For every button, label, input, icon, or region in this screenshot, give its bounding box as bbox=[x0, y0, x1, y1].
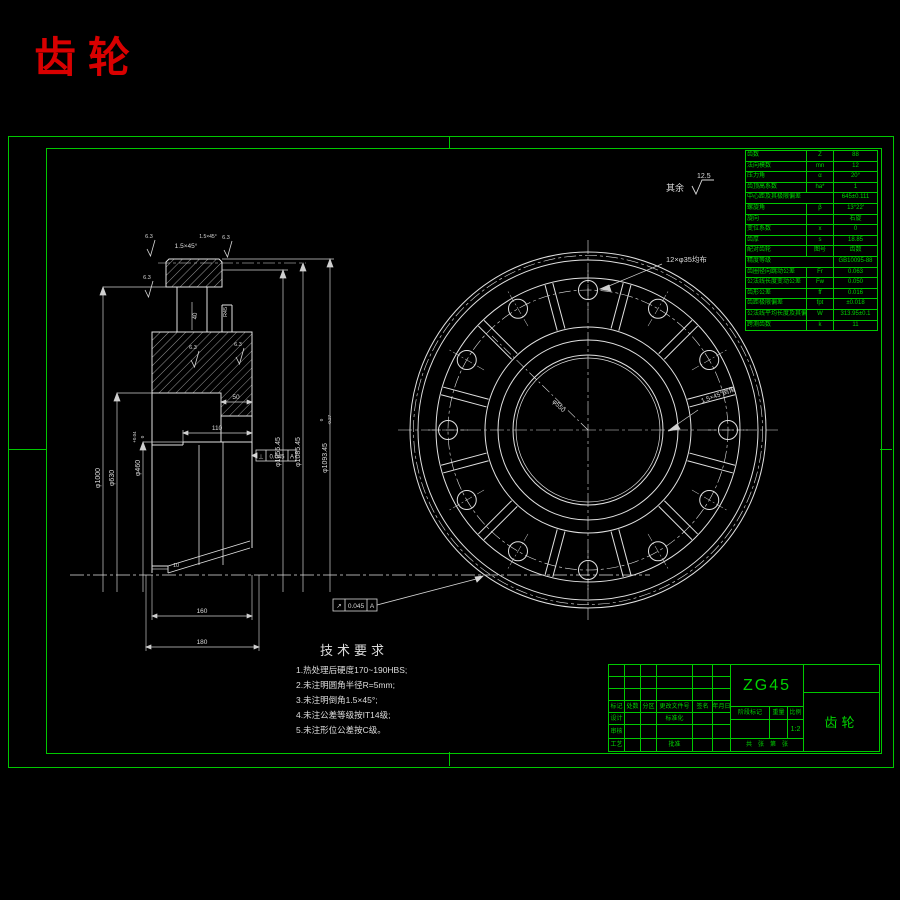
svg-text:6.3: 6.3 bbox=[145, 234, 153, 240]
svg-text:+0.04: +0.04 bbox=[132, 431, 137, 443]
part-name-cell: 齿轮 bbox=[803, 692, 880, 752]
dim-10: 10 bbox=[173, 563, 179, 569]
chamfer-note-1: 1.5×45° bbox=[175, 242, 198, 250]
bore-lines bbox=[152, 393, 252, 573]
dim-dia1000: φ1000 bbox=[95, 468, 102, 488]
svg-text:↗: ↗ bbox=[336, 603, 341, 610]
dim-r45: R45 bbox=[223, 307, 229, 317]
tolerance-frame-runout: ↗ 0.045 A bbox=[333, 576, 483, 611]
title-block: 标记 处数 分区 更改文件号 签名 年月日 设计 标准化 审核 工艺 批准 ZG… bbox=[608, 664, 880, 752]
label-audit: 审核 bbox=[608, 724, 625, 739]
svg-text:6.3: 6.3 bbox=[222, 235, 230, 241]
label-approve: 批准 bbox=[656, 738, 693, 752]
dim-50: 50 bbox=[232, 394, 240, 401]
dim-dia460: φ460 bbox=[135, 460, 142, 476]
tech-req-line: 3.未注明倒角1.5×45°; bbox=[296, 693, 407, 708]
scale-header: 比例 bbox=[787, 706, 804, 720]
roughness-icon bbox=[692, 180, 714, 194]
label-process: 工艺 bbox=[608, 738, 625, 752]
surface-note-prefix: 其余 bbox=[666, 182, 684, 193]
technical-requirements: 技术要求 1.热处理后硬度170~190HBS; 2.未注明圆角半径R=5mm;… bbox=[296, 640, 407, 738]
dim-40: 40 bbox=[193, 312, 199, 319]
dim-dia630: φ630 bbox=[109, 470, 116, 486]
tech-req-line: 4.未注公差等级按IT14级; bbox=[296, 708, 407, 723]
tolerance-frame-vertical-wall: ⊥ 0.045 A bbox=[252, 450, 296, 461]
tech-req-title: 技术要求 bbox=[320, 640, 407, 659]
svg-text:A: A bbox=[370, 603, 375, 610]
section-view bbox=[70, 259, 650, 651]
dim-dia1093: φ1093.45 bbox=[322, 443, 329, 473]
dim-110: 110 bbox=[212, 425, 223, 432]
web-section bbox=[166, 287, 222, 332]
svg-text:0: 0 bbox=[140, 435, 145, 438]
dim-180: 180 bbox=[197, 639, 208, 646]
dim-dia1055: φ1055.45 bbox=[275, 437, 282, 467]
drawing-views: φ1000 φ630 φ460 +0.04 0 φ1055.45 φ1085.4… bbox=[0, 0, 900, 900]
weight-header: 重量 bbox=[769, 706, 788, 720]
svg-text:-0.27: -0.27 bbox=[327, 414, 332, 425]
scale-value: 1:2 bbox=[787, 719, 804, 739]
geometric-tolerance-frames: ⊥ 0.045 A ↗ 0.045 A bbox=[252, 450, 483, 611]
sheet-note: 共 张 第 张 bbox=[730, 738, 804, 752]
stage-header: 阶段标记 bbox=[730, 706, 770, 720]
svg-text:⊥: ⊥ bbox=[258, 454, 263, 461]
svg-text:6.3: 6.3 bbox=[143, 275, 151, 281]
material-cell: ZG45 bbox=[730, 664, 804, 707]
rib-edge bbox=[152, 541, 250, 573]
bore-dia-label: φ550 bbox=[551, 398, 567, 414]
svg-text:A: A bbox=[290, 455, 294, 461]
dim-160: 160 bbox=[197, 608, 208, 615]
section-dim-texts: φ1000 φ630 φ460 +0.04 0 φ1055.45 φ1085.4… bbox=[95, 234, 332, 646]
roughness-icon: 6.3 bbox=[222, 235, 232, 257]
roughness-icon: 6.3 bbox=[145, 234, 155, 256]
svg-text:6.3: 6.3 bbox=[234, 342, 242, 348]
tech-req-line: 2.未注明圆角半径R=5mm; bbox=[296, 678, 407, 693]
roughness-icon: 6.3 bbox=[143, 275, 153, 297]
tech-req-line: 5.未注形位公差按C级。 bbox=[296, 723, 407, 738]
holes-callout: 12×φ35均布 bbox=[666, 254, 707, 264]
chamfer-note-2: 1.5×45° bbox=[199, 234, 216, 240]
svg-text:6.3: 6.3 bbox=[189, 345, 197, 351]
front-view bbox=[398, 240, 778, 620]
svg-text:0.045: 0.045 bbox=[348, 603, 365, 610]
cad-drawing-canvas: 齿轮 齿数Z88 法向模数mn12 压力角α20° 齿顶高系数ha*1 中心距及… bbox=[0, 0, 900, 900]
tech-req-line: 1.热处理后硬度170~190HBS; bbox=[296, 663, 407, 678]
svg-text:0.045: 0.045 bbox=[269, 455, 285, 461]
surface-note-value: 12.5 bbox=[697, 173, 711, 180]
general-roughness-note: 其余 12.5 bbox=[666, 173, 714, 194]
svg-text:0: 0 bbox=[319, 418, 324, 421]
